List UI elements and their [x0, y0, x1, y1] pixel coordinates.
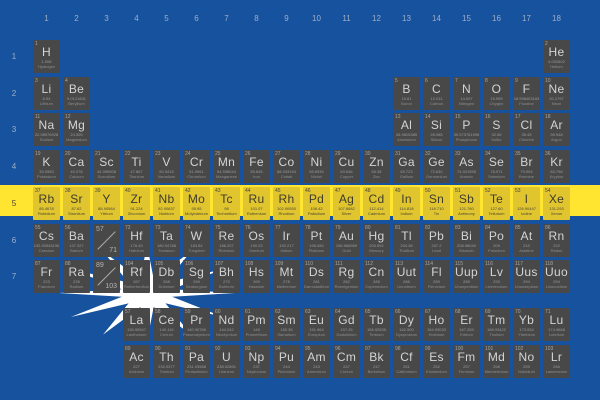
atomic-number: 28: [305, 151, 311, 157]
element-name: Bohrium: [219, 285, 234, 289]
element-name: Oxygen: [490, 102, 504, 106]
atomic-number: 81: [395, 225, 401, 231]
element-symbol: No: [519, 351, 535, 363]
element-symbol: Mn: [218, 156, 235, 168]
atomic-number: 76: [245, 225, 251, 231]
element-symbol: Al: [401, 119, 412, 131]
element-symbol: Br: [520, 156, 533, 168]
element-name: Selenium: [488, 175, 505, 179]
atomic-number: 101: [485, 346, 493, 352]
element-cell-p: 15P30.973761998Phosphorus: [453, 113, 480, 146]
element-symbol: Nd: [219, 314, 235, 326]
group-label: 4: [123, 14, 150, 23]
element-cell-sn: 50Sn118.710Tin: [423, 187, 450, 220]
element-name: Iridium: [280, 249, 292, 253]
element-symbol: Bh: [219, 266, 234, 278]
element-name: Nickel: [311, 175, 322, 179]
element-cell-ho: 67Ho164.93033Holmium: [423, 308, 450, 341]
element-symbol: Ac: [129, 351, 144, 363]
atomic-mass: 207.2: [431, 244, 441, 248]
atomic-number: 69: [485, 309, 491, 315]
element-cell-ba: 56Ba137.327Barium: [63, 224, 90, 257]
atomic-number: 100: [455, 346, 463, 352]
atomic-number: 118: [545, 261, 553, 267]
element-name: Ytterbium: [518, 333, 535, 337]
element-cell-si: 14Si28.085Silicon: [423, 113, 450, 146]
atomic-number: 57: [125, 309, 131, 315]
element-symbol: Cr: [190, 156, 203, 168]
atomic-number: 111: [335, 261, 343, 267]
element-symbol: Dy: [399, 314, 414, 326]
atomic-number: 14: [425, 114, 431, 120]
atomic-number: 91: [185, 346, 191, 352]
element-symbol: Bk: [369, 351, 384, 363]
element-cell-ru: 44Ru101.07Ruthenium: [243, 187, 270, 220]
element-name: Mercury: [369, 249, 383, 253]
atomic-number: 65: [365, 309, 371, 315]
atomic-number: 2: [545, 41, 548, 47]
element-name: Dysprosium: [396, 333, 417, 337]
element-name: Polonium: [488, 249, 505, 253]
element-cell-sr: 38Sr87.62Strontium: [63, 187, 90, 220]
element-symbol: Ra: [69, 266, 85, 278]
element-name: Magnesium: [66, 138, 87, 142]
element-name: Francium: [38, 285, 55, 289]
element-name: Hydrogen: [38, 65, 55, 69]
element-symbol: S: [492, 119, 500, 131]
element-symbol: Lr: [551, 351, 562, 363]
element-name: Xenon: [551, 212, 563, 216]
atomic-number: 34: [485, 151, 491, 157]
atomic-number: 55: [35, 225, 41, 231]
element-symbol: Md: [488, 351, 505, 363]
atomic-number: 104: [125, 261, 133, 267]
element-symbol: As: [459, 156, 474, 168]
atomic-number: 73: [155, 225, 161, 231]
element-symbol: He: [549, 46, 565, 58]
element-symbol: Ds: [309, 266, 324, 278]
element-symbol: Se: [489, 156, 504, 168]
element-symbol: Sn: [429, 193, 444, 205]
atomic-number: 93: [245, 346, 251, 352]
element-symbol: Tb: [369, 314, 384, 326]
period-label: 7: [5, 272, 23, 281]
element-symbol: Te: [490, 193, 503, 205]
element-name: Germanium: [426, 175, 447, 179]
element-cell-bh: 107Bh270Bohrium: [213, 260, 240, 293]
element-cell-kr: 36Kr83.798Krypton: [543, 150, 570, 183]
element-symbol: Ga: [398, 156, 415, 168]
atomic-number: 16: [485, 114, 491, 120]
atomic-number: 114: [425, 261, 433, 267]
element-name: Flerovium: [428, 285, 446, 289]
atomic-number: 80: [365, 225, 371, 231]
element-name: Zirconium: [128, 212, 146, 216]
element-name: Californium: [396, 370, 416, 374]
element-cell-am: 95Am243Americium: [303, 345, 330, 378]
range-start: 89: [96, 262, 104, 269]
period-label: 4: [5, 162, 23, 171]
element-name: Sodium: [40, 138, 54, 142]
atomic-mass: 178.49: [130, 244, 142, 248]
element-symbol: Rh: [279, 193, 295, 205]
element-name: Samarium: [277, 333, 295, 337]
element-symbol: Es: [429, 351, 444, 363]
element-name: Berkelium: [368, 370, 386, 374]
atomic-number: 46: [305, 188, 311, 194]
element-name: Bismuth: [459, 249, 473, 253]
element-symbol: Th: [159, 351, 174, 363]
element-symbol: Ho: [429, 314, 445, 326]
element-cell-lr: 103Lr266Lawrencium: [543, 345, 570, 378]
element-symbol: Ca: [69, 156, 85, 168]
atomic-number: 21: [95, 151, 101, 157]
element-name: Cobalt: [281, 175, 293, 179]
element-name: Curium: [340, 370, 353, 374]
range-placeholder-cell: 89103: [93, 260, 120, 293]
atomic-number: 96: [335, 346, 341, 352]
element-symbol: Rg: [339, 266, 355, 278]
element-name: Plutonium: [278, 370, 296, 374]
element-cell-cn: 112Cn285Copernicium: [363, 260, 390, 293]
atomic-number: 70: [515, 309, 521, 315]
atomic-number: 41: [155, 188, 161, 194]
element-cell-hf: 72Hf178.49Hafnium: [123, 224, 150, 257]
element-symbol: Ag: [339, 193, 354, 205]
element-name: Strontium: [68, 212, 85, 216]
element-cell-uup: 115Uup289Ununpentium: [453, 260, 480, 293]
group-label: 2: [63, 14, 90, 23]
element-cell-n: 7N14.007Nitrogen: [453, 77, 480, 110]
atomic-number: 115: [455, 261, 463, 267]
element-name: Nobelium: [518, 370, 535, 374]
range-end: 71: [109, 247, 117, 254]
element-cell-cu: 29Cu63.546Copper: [333, 150, 360, 183]
element-cell-br: 35Br79.904Bromine: [513, 150, 540, 183]
atomic-number: 12: [65, 114, 71, 120]
element-name: Seaborgium: [186, 285, 208, 289]
atomic-number: 27: [275, 151, 281, 157]
element-cell-bi: 83Bi208.98040Bismuth: [453, 224, 480, 257]
element-name: Arsenic: [460, 175, 473, 179]
element-symbol: Ce: [159, 314, 175, 326]
element-symbol: Li: [42, 83, 52, 95]
atomic-number: 68: [455, 309, 461, 315]
atomic-number: 36: [545, 151, 551, 157]
atomic-mass: 132.90545196: [34, 244, 60, 248]
atomic-number: 105: [155, 261, 163, 267]
element-symbol: At: [521, 230, 533, 242]
atomic-number: 59: [185, 309, 191, 315]
element-name: Tellurium: [488, 212, 504, 216]
element-cell-uuo: 118Uuo294Ununoctium: [543, 260, 570, 293]
element-cell-pb: 82Pb207.2Lead: [423, 224, 450, 257]
element-symbol: Eu: [309, 314, 324, 326]
element-name: Promethium: [246, 333, 268, 337]
atomic-mass: 208.98040: [457, 244, 476, 248]
element-name: Fluorine: [519, 102, 533, 106]
period-label: 3: [5, 125, 23, 134]
atomic-number: 75: [215, 225, 221, 231]
element-symbol: La: [130, 314, 144, 326]
range-placeholder-cell: 5771: [93, 224, 120, 257]
element-symbol: W: [191, 230, 203, 242]
element-name: Chlorine: [519, 138, 534, 142]
element-cell-pm: 61Pm145Promethium: [243, 308, 270, 341]
element-cell-ar: 18Ar39.948Argon: [543, 113, 570, 146]
element-name: Gold: [342, 249, 350, 253]
element-name: Darmstadtium: [304, 285, 329, 289]
element-symbol: Er: [460, 314, 473, 326]
element-cell-ra: 88Ra226Radium: [63, 260, 90, 293]
element-name: Argon: [551, 138, 562, 142]
atomic-number: 103: [545, 346, 553, 352]
element-symbol: Nb: [159, 193, 175, 205]
atomic-number: 66: [395, 309, 401, 315]
element-name: Aluminium: [397, 138, 416, 142]
element-name: Nitrogen: [459, 102, 474, 106]
group-label: 11: [333, 14, 360, 23]
element-cell-rg: 111Rg282Roentgenium: [333, 260, 360, 293]
element-cell-as: 33As74.921595Arsenic: [453, 150, 480, 183]
element-symbol: I: [525, 193, 529, 205]
element-symbol: H: [42, 46, 51, 58]
element-cell-fe: 26Fe55.845Iron: [243, 150, 270, 183]
element-name: Tantalum: [158, 249, 174, 253]
element-name: Thallium: [399, 249, 414, 253]
element-cell-tm: 69Tm168.93422Thulium: [483, 308, 510, 341]
element-name: Ununpentium: [455, 285, 479, 289]
element-name: Iron: [253, 175, 260, 179]
element-cell-gd: 64Gd157.25Gadolinium: [333, 308, 360, 341]
element-cell-se: 34Se78.971Selenium: [483, 150, 510, 183]
element-cell-cs: 55Cs132.90545196Caesium: [33, 224, 60, 257]
element-cell-ge: 32Ge72.630Germanium: [423, 150, 450, 183]
element-cell-ir: 77Ir192.217Iridium: [273, 224, 300, 257]
element-cell-mt: 109Mt278Meitnerium: [273, 260, 300, 293]
atomic-number: 107: [215, 261, 223, 267]
element-symbol: Ge: [428, 156, 445, 168]
element-cell-ds: 110Ds281Darmstadtium: [303, 260, 330, 293]
element-name: Terbium: [369, 333, 383, 337]
atomic-number: 95: [305, 346, 311, 352]
atomic-number: 35: [515, 151, 521, 157]
element-cell-nb: 41Nb92.90637Niobium: [153, 187, 180, 220]
element-cell-cm: 96Cm247Curium: [333, 345, 360, 378]
element-cell-lu: 71Lu174.9668Lutetium: [543, 308, 570, 341]
element-symbol: Y: [102, 193, 110, 205]
element-name: Potassium: [37, 175, 56, 179]
element-symbol: Pd: [309, 193, 324, 205]
atomic-number: 4: [65, 78, 68, 84]
element-name: Calcium: [69, 175, 83, 179]
element-symbol: B: [402, 83, 410, 95]
atomic-number: 26: [245, 151, 251, 157]
element-symbol: Ba: [69, 230, 84, 242]
atomic-number: 79: [335, 225, 341, 231]
element-symbol: Ti: [131, 156, 141, 168]
element-name: Gadolinium: [336, 333, 356, 337]
element-symbol: Cu: [339, 156, 355, 168]
element-symbol: Tl: [401, 230, 412, 242]
element-name: Rhodium: [278, 212, 294, 216]
element-name: Chromium: [187, 175, 205, 179]
range-end: 103: [105, 283, 117, 290]
atomic-mass: 190.23: [250, 244, 262, 248]
element-name: Phosphorus: [456, 138, 477, 142]
element-symbol: Lv: [490, 266, 503, 278]
element-cell-h: 1H1.008Hydrogen: [33, 40, 60, 73]
period-label: 1: [5, 52, 23, 61]
element-symbol: Mo: [188, 193, 205, 205]
group-label: 10: [303, 14, 330, 23]
element-symbol: Xe: [549, 193, 564, 205]
element-name: Ruthenium: [247, 212, 266, 216]
element-name: Actinium: [129, 370, 144, 374]
atomic-mass: 210: [523, 244, 530, 248]
atomic-number: 82: [425, 225, 431, 231]
element-name: Astatine: [519, 249, 533, 253]
element-symbol: Si: [431, 119, 442, 131]
element-symbol: Mg: [68, 119, 85, 131]
element-symbol: Hs: [249, 266, 264, 278]
element-name: Thulium: [489, 333, 503, 337]
element-symbol: Au: [339, 230, 354, 242]
element-name: Boron: [401, 102, 412, 106]
element-name: Protactinium: [185, 370, 207, 374]
element-name: Holmium: [429, 333, 445, 337]
group-label: 17: [513, 14, 540, 23]
atomic-number: 6: [425, 78, 428, 84]
element-name: Rutherfordium: [124, 285, 149, 289]
atomic-number: 106: [185, 261, 193, 267]
element-symbol: C: [432, 83, 441, 95]
atomic-mass: 180.94788: [157, 244, 176, 248]
element-cell-xe: 54Xe131.293Xenon: [543, 187, 570, 220]
element-symbol: Cm: [337, 351, 356, 363]
atomic-number: 71: [545, 309, 551, 315]
element-name: Copper: [340, 175, 353, 179]
group-label: 9: [273, 14, 300, 23]
element-name: Livermorium: [485, 285, 507, 289]
element-symbol: O: [492, 83, 502, 95]
atomic-number: 72: [125, 225, 131, 231]
atomic-number: 60: [215, 309, 221, 315]
atomic-number: 54: [545, 188, 551, 194]
element-name: Cerium: [160, 333, 173, 337]
atomic-mass: 186.207: [219, 244, 233, 248]
element-cell-ac: 89Ac227Actinium: [123, 345, 150, 378]
atomic-number: 67: [425, 309, 431, 315]
group-label: 5: [153, 14, 180, 23]
atomic-number: 22: [125, 151, 131, 157]
element-cell-rh: 45Rh102.90550Rhodium: [273, 187, 300, 220]
element-name: Neptunium: [247, 370, 266, 374]
element-cell-he: 2He4.002602Helium: [543, 40, 570, 73]
element-symbol: Pa: [189, 351, 204, 363]
atomic-number: 87: [35, 261, 41, 267]
element-symbol: Tm: [488, 314, 506, 326]
atomic-number: 38: [65, 188, 71, 194]
element-symbol: Cd: [369, 193, 385, 205]
element-cell-uus: 117Uus294Ununseptium: [513, 260, 540, 293]
atomic-number: 13: [395, 114, 401, 120]
element-cell-pu: 94Pu244Plutonium: [273, 345, 300, 378]
element-name: Mendelevium: [485, 370, 509, 374]
element-cell-pa: 91Pa231.03588Protactinium: [183, 345, 210, 378]
element-symbol: Rf: [130, 266, 143, 278]
element-cell-bk: 97Bk247Berkelium: [363, 345, 390, 378]
element-cell-al: 13Al26.9815385Aluminium: [393, 113, 420, 146]
atomic-number: 37: [35, 188, 41, 194]
atomic-number: 31: [395, 151, 401, 157]
atomic-number: 74: [185, 225, 191, 231]
atomic-number: 50: [425, 188, 431, 194]
element-name: Hassium: [249, 285, 265, 289]
element-name: Tin: [434, 212, 439, 216]
element-name: Sulfur: [491, 138, 501, 142]
element-cell-b: 5B10.81Boron: [393, 77, 420, 110]
element-cell-th: 90Th232.0377Thorium: [153, 345, 180, 378]
element-name: Iodine: [521, 212, 532, 216]
atomic-number: 18: [545, 114, 551, 120]
element-symbol: Sb: [459, 193, 474, 205]
element-symbol: Am: [307, 351, 326, 363]
element-name: Lanthanum: [126, 333, 146, 337]
element-cell-sb: 51Sb121.760Antimony: [453, 187, 480, 220]
atomic-number: 78: [305, 225, 311, 231]
element-name: Manganese: [216, 175, 237, 179]
element-cell-rb: 37Rb85.4678Rubidium: [33, 187, 60, 220]
element-symbol: N: [462, 83, 471, 95]
element-symbol: Rb: [39, 193, 55, 205]
element-name: Niobium: [159, 212, 174, 216]
atomic-number: 25: [215, 151, 221, 157]
atomic-number: 43: [215, 188, 221, 194]
element-cell-zn: 30Zn65.38Zinc: [363, 150, 390, 183]
element-symbol: Uut: [397, 266, 417, 278]
atomic-number: 24: [185, 151, 191, 157]
element-cell-i: 53I126.90447Iodine: [513, 187, 540, 220]
atomic-number: 85: [515, 225, 521, 231]
element-name: Neon: [552, 102, 562, 106]
atomic-number: 10: [545, 78, 551, 84]
element-symbol: Pb: [429, 230, 444, 242]
element-cell-sc: 21Sc44.955908Scandium: [93, 150, 120, 183]
element-cell-md: 101Md258Mendelevium: [483, 345, 510, 378]
period-label: 2: [5, 89, 23, 98]
element-name: Yttrium: [100, 212, 113, 216]
atomic-number: 112: [365, 261, 373, 267]
element-cell-u: 92U238.02891Uranium: [213, 345, 240, 378]
periodic-table: 12345678910111213141516171812345671H1.00…: [0, 0, 600, 400]
element-symbol: Hf: [130, 230, 143, 242]
element-cell-la: 57La138.90547Lanthanum: [123, 308, 150, 341]
atomic-number: 23: [155, 151, 161, 157]
element-symbol: Ar: [550, 119, 563, 131]
element-name: Copernicium: [365, 285, 387, 289]
element-name: Krypton: [550, 175, 564, 179]
element-cell-fl: 114Fl289Flerovium: [423, 260, 450, 293]
atomic-number: 64: [335, 309, 341, 315]
element-symbol: Bi: [461, 230, 472, 242]
element-symbol: Pu: [279, 351, 294, 363]
element-symbol: U: [222, 351, 231, 363]
element-symbol: Np: [249, 351, 265, 363]
atomic-number: 117: [515, 261, 523, 267]
element-name: Ununoctium: [546, 285, 567, 289]
element-cell-db: 105Db268Dubnium: [153, 260, 180, 293]
